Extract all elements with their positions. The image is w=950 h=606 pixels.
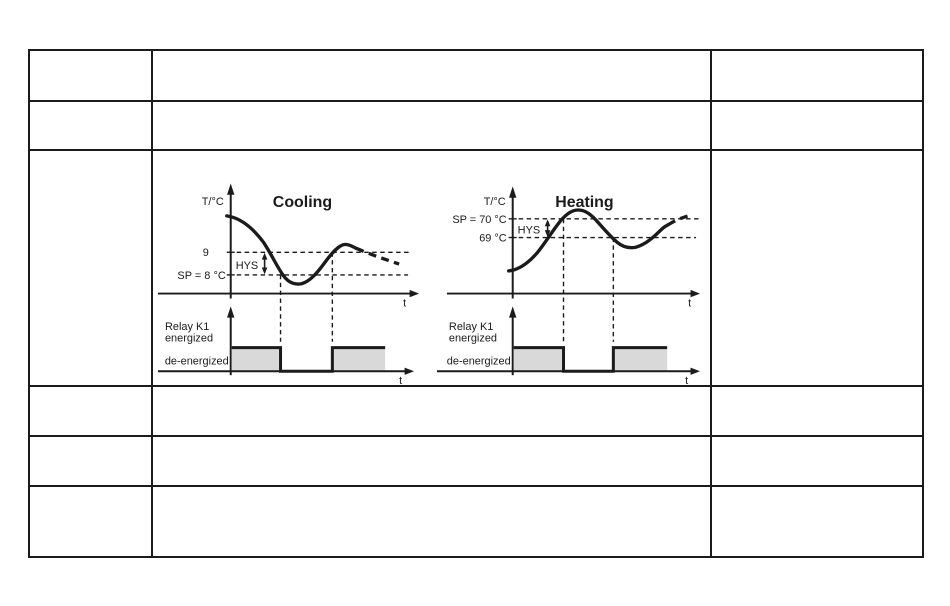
- table-cell: [711, 50, 923, 101]
- relay-on-segment: [613, 348, 667, 372]
- cooling-x-axis-label: t: [403, 297, 406, 309]
- table-cell: [29, 386, 152, 436]
- heating-temperature-curve-dashed: [668, 215, 691, 225]
- relay-energized-label: energized: [165, 333, 213, 345]
- heating-setpoint-label: SP = 70 °C: [452, 214, 507, 226]
- arrow-right-icon: [405, 368, 414, 375]
- heating-temperature-curve: [509, 210, 668, 271]
- arrow-down-icon: [262, 268, 268, 275]
- relay-on-segment: [332, 348, 385, 372]
- table-row: Cooling T/°C t 9 SP: [29, 150, 923, 386]
- heating-hys-label: HYS: [518, 225, 541, 237]
- relay-on-segment: [514, 348, 564, 372]
- spec-table: Cooling T/°C t 9 SP: [28, 49, 924, 558]
- table-cell: [711, 150, 923, 386]
- table-cell: [29, 486, 152, 557]
- table-row: [29, 386, 923, 436]
- table-row: [29, 436, 923, 486]
- table-row: [29, 101, 923, 150]
- heating-relay-chart: t Relay K1 energized de-energized: [437, 306, 700, 385]
- arrow-right-icon: [691, 368, 700, 375]
- table-cell: [152, 386, 711, 436]
- relay-deenergized-label: de-energized: [165, 355, 229, 367]
- cooling-title: Cooling: [273, 194, 332, 211]
- table-cell: [152, 436, 711, 486]
- arrow-right-icon: [410, 290, 419, 297]
- arrow-up-icon: [227, 183, 234, 194]
- cooling-diagram: Cooling T/°C t 9 SP: [158, 183, 419, 385]
- table-cell: [29, 436, 152, 486]
- relay-label: Relay K1: [165, 321, 209, 333]
- heating-y-axis-label: T/°C: [484, 196, 506, 208]
- arrow-up-icon: [509, 306, 516, 317]
- relay-energized-label: energized: [449, 333, 497, 345]
- document-page: Cooling T/°C t 9 SP: [0, 0, 950, 606]
- table-cell: [711, 436, 923, 486]
- heating-diagram: Heating T/°C t SP = 70 °C: [437, 186, 700, 385]
- table-cell: [711, 486, 923, 557]
- table-cell: [29, 150, 152, 386]
- arrow-up-icon: [545, 219, 551, 226]
- relay-deenergized-label: de-energized: [447, 355, 511, 367]
- table-cell: [152, 101, 711, 150]
- cooling-relay-chart: t Relay K1 energized de-energized: [158, 306, 414, 385]
- relay-x-axis-label: t: [685, 375, 688, 385]
- table-cell: [152, 50, 711, 101]
- relay-on-segment: [232, 348, 281, 372]
- hysteresis-figure-cell: Cooling T/°C t 9 SP: [152, 150, 711, 386]
- heating-x-axis-label: t: [688, 297, 691, 309]
- heating-title: Heating: [555, 194, 613, 211]
- hysteresis-diagrams: Cooling T/°C t 9 SP: [153, 151, 710, 385]
- table-cell: [152, 486, 711, 557]
- arrow-up-icon: [262, 253, 268, 260]
- table-row: [29, 50, 923, 101]
- table-cell: [29, 101, 152, 150]
- table-cell: [29, 50, 152, 101]
- arrow-up-icon: [227, 306, 234, 317]
- heating-threshold-label: 69 °C: [479, 233, 507, 245]
- cooling-temperature-curve: [227, 216, 357, 284]
- cooling-setpoint-label: SP = 8 °C: [177, 270, 225, 282]
- arrow-right-icon: [691, 290, 700, 297]
- relay-x-axis-label: t: [399, 375, 402, 385]
- relay-label: Relay K1: [449, 321, 493, 333]
- table-cell: [711, 101, 923, 150]
- table-cell: [711, 386, 923, 436]
- table-row: [29, 486, 923, 557]
- cooling-y-axis-label: T/°C: [202, 196, 224, 208]
- arrow-up-icon: [509, 186, 516, 197]
- cooling-hys-label: HYS: [236, 260, 259, 272]
- cooling-threshold-label: 9: [203, 247, 209, 259]
- cooling-temperature-curve-dashed: [356, 248, 399, 264]
